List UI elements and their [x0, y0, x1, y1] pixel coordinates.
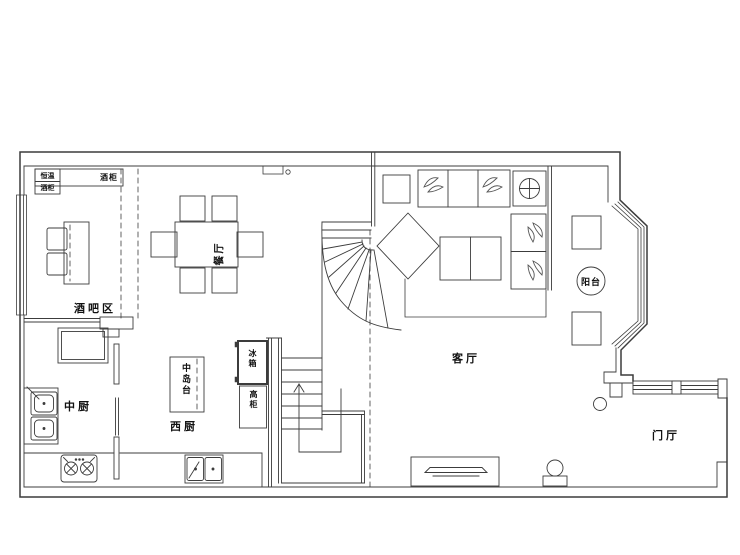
left-window [17, 195, 27, 315]
wine-cabinet-label: 酒柜 [96, 172, 122, 183]
tall-cabinet-label: 高柜 [248, 390, 259, 410]
wine-fridge-label-bottom: 酒柜 [37, 183, 58, 193]
room-label-western-kitchen: 西厨 [170, 418, 198, 434]
side-table [383, 175, 410, 203]
room-label-chinese-kitchen: 中厨 [64, 398, 92, 414]
floor-plan-canvas: 恒温 酒柜 酒柜 酒吧区 餐厅 中岛台 冰箱 高柜 中厨 西厨 客厅 阳台 门厅 [0, 0, 740, 555]
room-label-living: 客厅 [452, 350, 480, 366]
top-door-notch [263, 166, 290, 174]
room-label-dining: 餐厅 [211, 236, 226, 272]
tv-cabinet [411, 457, 499, 486]
dining-chairs [151, 196, 263, 293]
kitchen-partition-and-doors [114, 344, 119, 479]
fridge-label: 冰箱 [247, 349, 258, 369]
island-label: 中岛台 [179, 363, 192, 396]
bar-table [64, 222, 89, 284]
dashed-guides [70, 169, 370, 487]
straight-stair [279, 238, 365, 483]
plant-table [513, 171, 546, 206]
balcony-plant-bottom [572, 312, 601, 345]
gas-stove [61, 455, 97, 482]
living-balcony-wall [548, 167, 552, 290]
wine-fridge-label-top: 恒温 [37, 171, 58, 181]
entry-pier-wall [594, 348, 634, 411]
room-label-bar: 酒吧区 [74, 300, 116, 316]
corner-cabinet [58, 328, 108, 363]
floor-plan-svg [0, 0, 740, 555]
room-label-foyer: 门厅 [652, 427, 680, 443]
dining-table [175, 222, 238, 267]
right-sofa [511, 214, 546, 289]
left-sinks [31, 392, 57, 440]
rug-outline [405, 279, 546, 317]
kitchen-counters [24, 387, 262, 487]
bay-window [612, 202, 644, 348]
double-sink [185, 455, 223, 483]
armchair-diamond [377, 213, 439, 279]
foyer-window [633, 381, 718, 394]
spiral-stair [322, 153, 401, 330]
bar-kitchen-partition [24, 317, 133, 337]
stair-kitchen-wall [267, 338, 282, 487]
balcony-plant-top [572, 216, 601, 249]
coffee-table [440, 237, 501, 280]
decor-pedestal [543, 460, 567, 486]
room-label-balcony: 阳台 [577, 275, 605, 288]
main-sofa [418, 170, 510, 207]
